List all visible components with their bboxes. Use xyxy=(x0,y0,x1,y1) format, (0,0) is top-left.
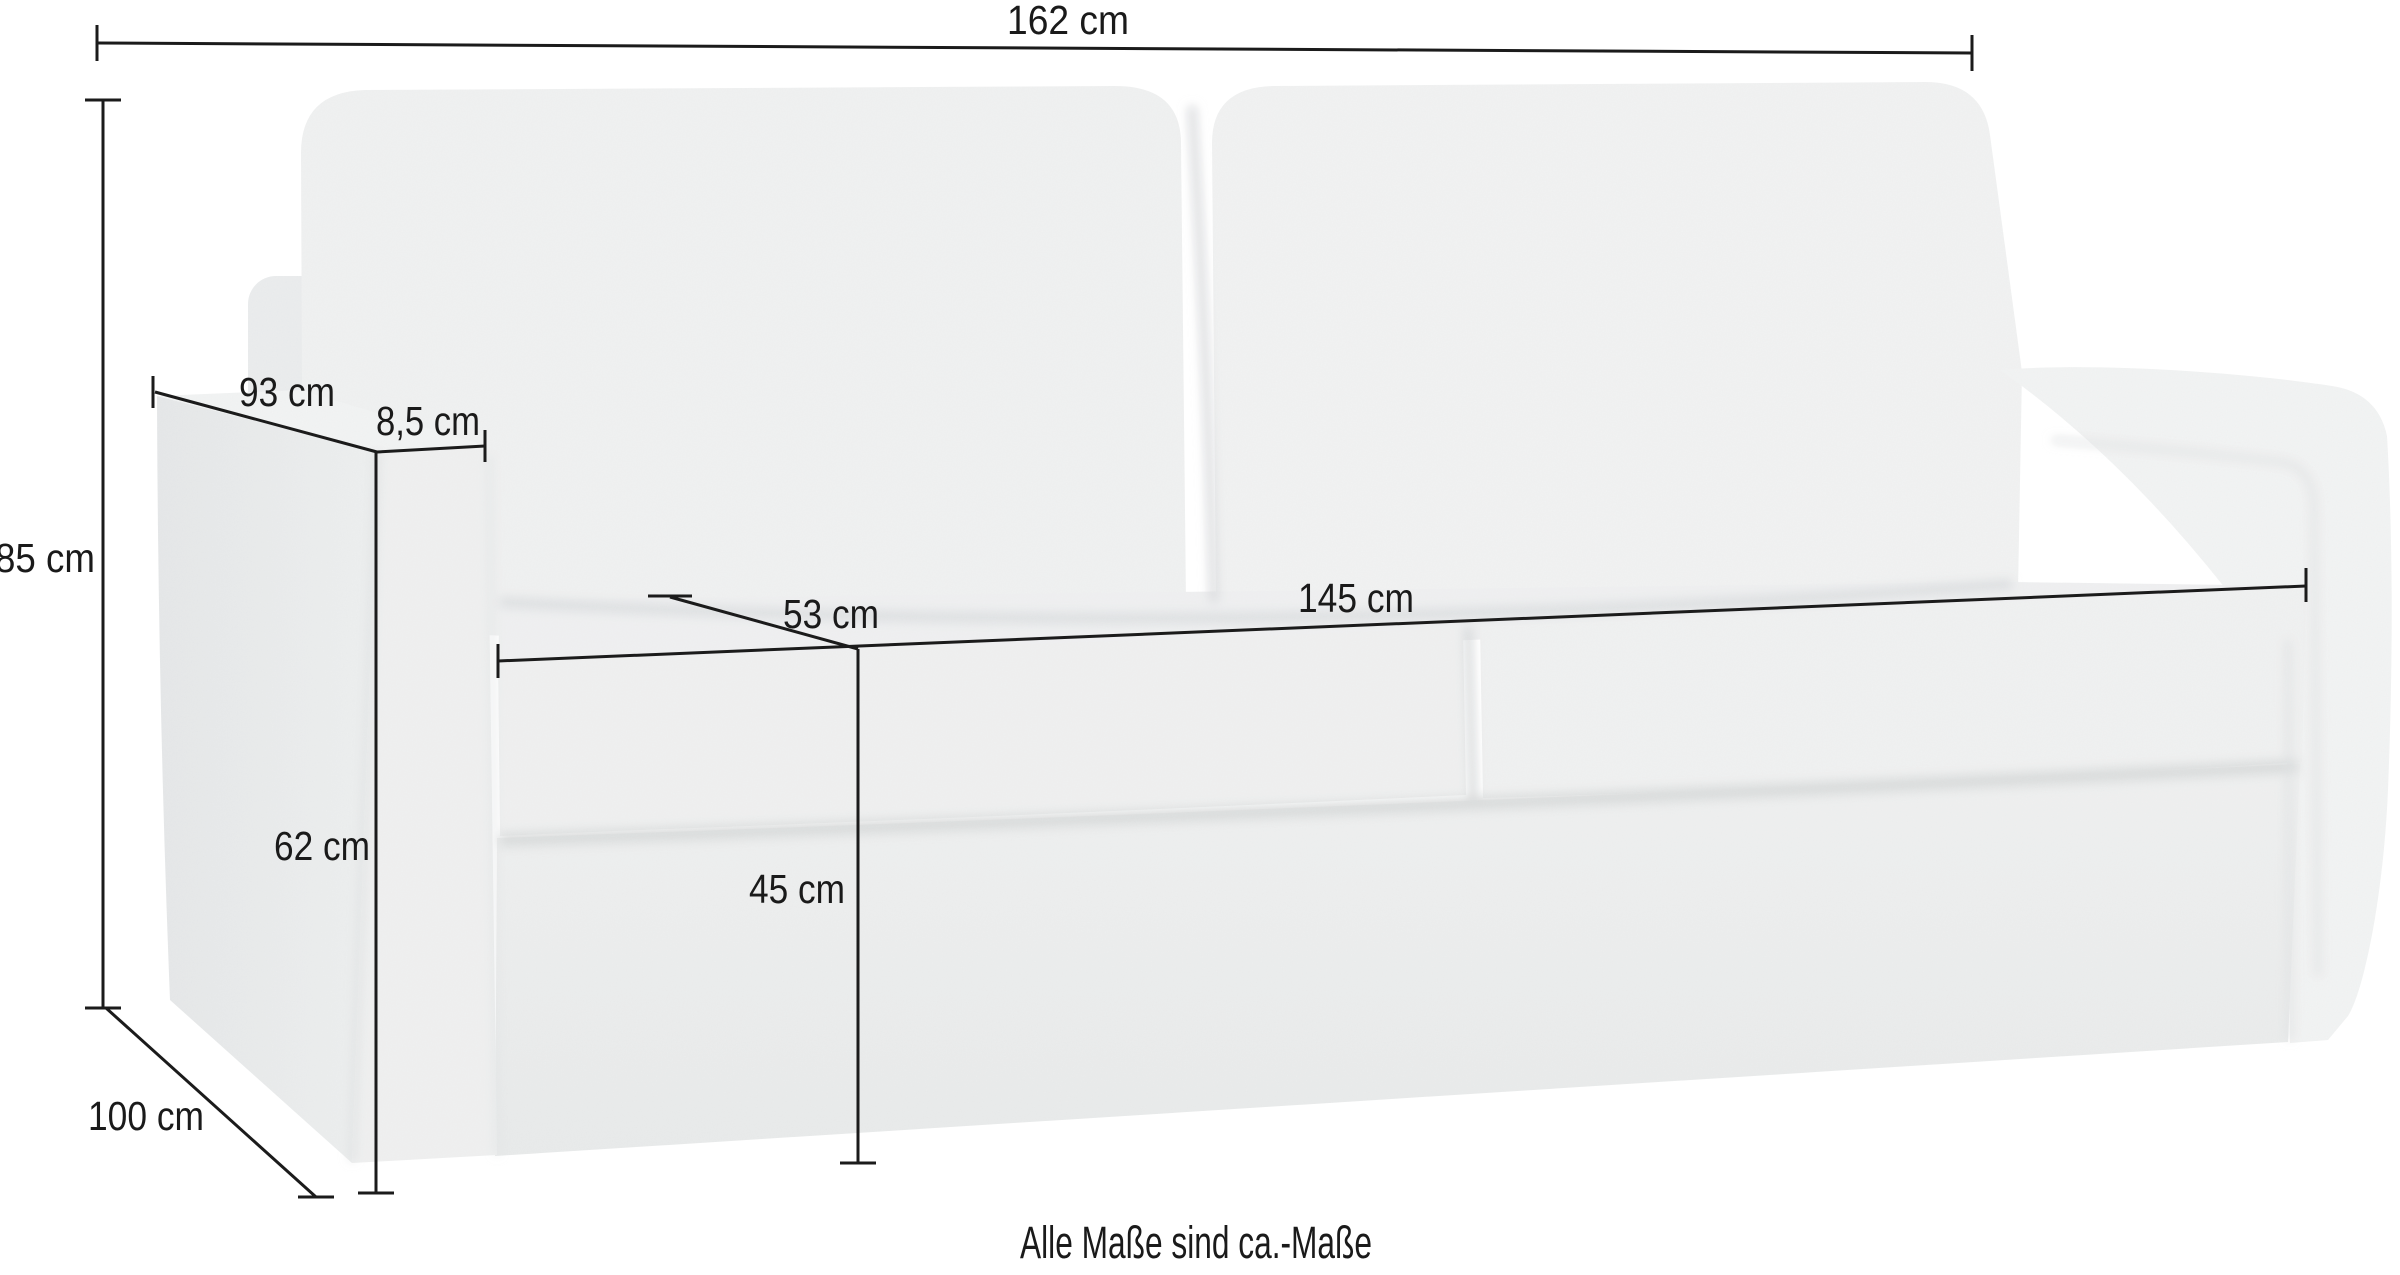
dim-label-seat-height: 45 cm xyxy=(749,866,845,912)
diagram-svg: 162 cm 85 cm 93 cm 8,5 cm 53 cm 145 cm 6… xyxy=(0,0,2400,1275)
dim-label-total-height: 85 cm xyxy=(0,535,95,581)
dim-label-seat-width: 145 cm xyxy=(1298,575,1414,621)
dim-line-backrest-width xyxy=(97,43,1972,53)
sofa-back-cushion-right xyxy=(1212,82,2022,618)
sofa-side-left xyxy=(157,396,378,1163)
dim-label-seat-depth: 53 cm xyxy=(783,591,879,637)
sofa-illustration xyxy=(157,82,2392,1163)
dim-label-backrest-width: 162 cm xyxy=(1007,0,1129,43)
sofa-dimension-diagram: 162 cm 85 cm 93 cm 8,5 cm 53 cm 145 cm 6… xyxy=(0,0,2400,1275)
dim-label-armrest-width: 8,5 cm xyxy=(376,398,480,444)
measure-note: Alle Maße sind ca.-Maße xyxy=(1020,1217,1372,1268)
dim-label-front-height: 62 cm xyxy=(274,823,370,869)
dim-label-total-depth: 93 cm xyxy=(239,369,335,415)
dim-label-base-depth: 100 cm xyxy=(88,1093,204,1139)
